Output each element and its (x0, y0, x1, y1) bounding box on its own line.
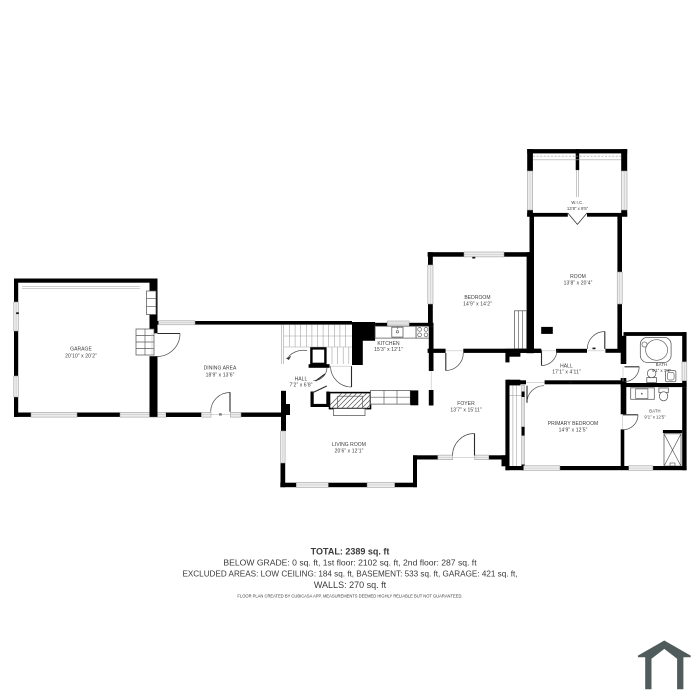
svg-text:13’8” x 20’4”: 13’8” x 20’4” (564, 280, 593, 286)
svg-text:14’9” x 12’5”: 14’9” x 12’5” (559, 427, 588, 433)
svg-text:14’9” x 14’2”: 14’9” x 14’2” (463, 302, 492, 308)
svg-text:20’6” x 12’1”: 20’6” x 12’1” (335, 448, 364, 454)
svg-text:GARAGE: GARAGE (70, 347, 92, 353)
svg-text:7’2” x 6’8”: 7’2” x 6’8” (289, 383, 312, 389)
svg-text:18’9” x 13’6”: 18’9” x 13’6” (206, 373, 235, 379)
svg-text:W.I.C.: W.I.C. (571, 200, 583, 205)
svg-text:EXCLUDED AREAS: LOW CEILING: 1: EXCLUDED AREAS: LOW CEILING: 184 sq. ft,… (182, 570, 517, 579)
svg-text:13’7” x 15’11”: 13’7” x 15’11” (450, 408, 482, 414)
svg-text:BATH: BATH (649, 408, 660, 413)
svg-text:13’8” x 9’5”: 13’8” x 9’5” (567, 206, 589, 211)
svg-text:HALL: HALL (295, 376, 308, 382)
svg-text:BEDROOM: BEDROOM (464, 295, 490, 301)
svg-text:FOYER: FOYER (457, 401, 475, 407)
svg-text:HALL: HALL (560, 363, 573, 369)
svg-text:KITCHEN: KITCHEN (377, 341, 400, 347)
svg-text:BATH: BATH (656, 362, 667, 367)
svg-text:9’1” x 12’5”: 9’1” x 12’5” (644, 414, 666, 419)
svg-text:LIVING ROOM: LIVING ROOM (332, 442, 366, 448)
svg-text:BELOW GRADE: 0 sq. ft, 1st flo: BELOW GRADE: 0 sq. ft, 1st floor: 2102 s… (223, 558, 477, 568)
svg-text:DINING AREA: DINING AREA (204, 366, 237, 372)
svg-text:15’3” x 12’1”: 15’3” x 12’1” (374, 347, 403, 353)
svg-text:TOTAL: 2389 sq. ft: TOTAL: 2389 sq. ft (311, 547, 390, 557)
svg-text:9’1” x 7’3”: 9’1” x 7’3” (652, 368, 671, 373)
svg-text:20’10” x 20’2”: 20’10” x 20’2” (65, 354, 97, 360)
svg-text:17’1” x 4’11”: 17’1” x 4’11” (552, 370, 581, 376)
svg-text:ROOM: ROOM (570, 274, 586, 280)
svg-text:FLOOR PLAN CREATED BY CUBICASA: FLOOR PLAN CREATED BY CUBICASA APP. MEAS… (237, 593, 462, 598)
svg-text:PRIMARY BEDROOM: PRIMARY BEDROOM (548, 421, 599, 427)
svg-text:WALLS: 270 sq. ft: WALLS: 270 sq. ft (314, 580, 387, 590)
